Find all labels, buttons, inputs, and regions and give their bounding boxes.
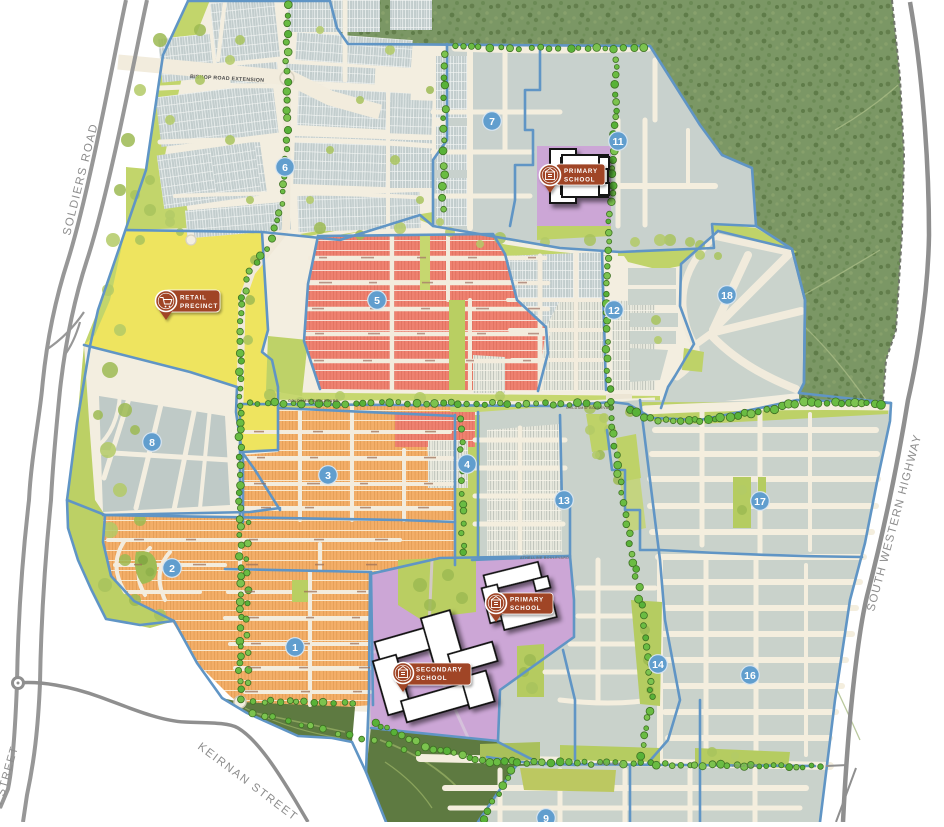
svg-text:GOLDSMID BOULEVARD: GOLDSMID BOULEVARD [288,399,339,403]
svg-text:SCHOOL: SCHOOL [564,177,595,184]
svg-text:6: 6 [282,162,288,174]
svg-text:KEILLY ROAD: KEILLY ROAD [596,761,622,766]
svg-text:16: 16 [744,670,756,682]
svg-text:9: 9 [543,813,549,822]
svg-text:7: 7 [489,116,495,128]
svg-text:PRIMARY: PRIMARY [564,168,598,175]
svg-text:11: 11 [612,136,623,148]
svg-text:SECONDARY: SECONDARY [416,667,463,674]
svg-text:2: 2 [169,563,175,575]
svg-text:RETAIL: RETAIL [180,295,207,302]
svg-text:5: 5 [374,295,380,307]
svg-text:KEILLY ROAD: KEILLY ROAD [732,763,758,768]
svg-text:8: 8 [149,437,155,449]
svg-text:3: 3 [325,470,331,482]
svg-text:SCHOOL: SCHOOL [510,605,541,612]
svg-text:GOLDSMID BOULEVARD: GOLDSMID BOULEVARD [566,406,614,410]
svg-text:12: 12 [608,305,620,317]
svg-text:17: 17 [754,496,766,508]
svg-text:18: 18 [721,290,733,302]
svg-text:ATHELLINE BOULEVARD: ATHELLINE BOULEVARD [520,556,569,560]
svg-text:14: 14 [652,659,664,671]
svg-text:PRECINCT: PRECINCT [180,303,218,310]
svg-text:SCHOOL: SCHOOL [416,675,447,682]
svg-text:13: 13 [558,495,570,507]
svg-text:1: 1 [292,642,298,654]
svg-text:4: 4 [464,459,470,471]
svg-text:N STREET: N STREET [0,744,21,810]
svg-text:PRIMARY: PRIMARY [510,597,544,604]
